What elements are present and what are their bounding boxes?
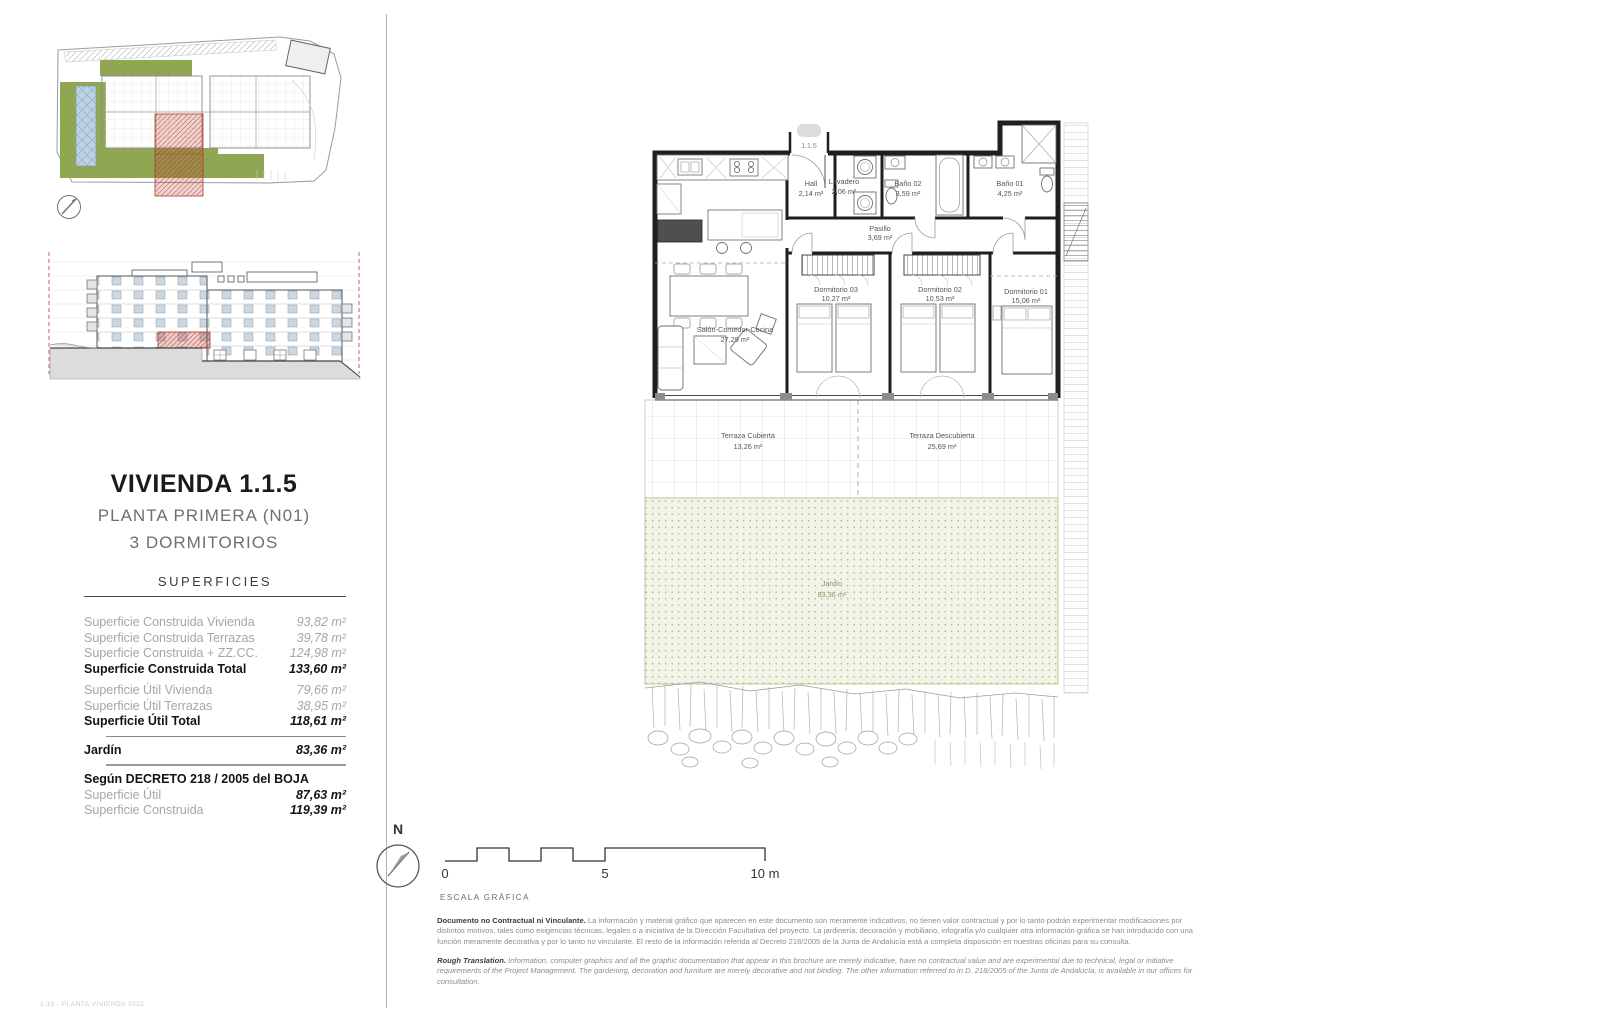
row-value: 79,66 m² (297, 683, 346, 699)
table-row: Superficie Construida Terrazas 39,78 m² (84, 631, 346, 647)
page-title: VIVIENDA 1.1.5 (38, 470, 370, 499)
media-cabinet (658, 220, 702, 242)
room-area-dormitorio02: 10,53 m² (926, 294, 955, 303)
table-row-garden: Jardín 83,36 m² (84, 743, 346, 759)
room-label-lavadero: Lavadero (829, 177, 859, 186)
table-row-total: Superficie Construida Total 133,60 m² (84, 662, 346, 678)
room-label-jardin: Jardín (822, 579, 842, 588)
stove-icon (730, 159, 758, 176)
elevation-drawing (42, 246, 367, 382)
row-label: Jardín (84, 743, 122, 759)
row-value: 93,82 m² (297, 615, 346, 631)
room-area-terraza-cubierta: 13,26 m² (734, 442, 763, 451)
room-label-terraza-descubierta: Terraza Descubierta (909, 431, 975, 440)
table-row: Superficie Construida Vivienda 93,82 m² (84, 615, 346, 631)
row-label: Superficie Útil Vivienda (84, 683, 212, 699)
terrace-area (645, 400, 1058, 498)
room-label-hall: Hall (805, 179, 818, 188)
row-value: 133,60 m² (289, 662, 346, 678)
table-row: Superficie Construida + ZZ.CC. 124,98 m² (84, 646, 346, 662)
row-label: Superficie Útil Terrazas (84, 699, 212, 715)
toilet-icon (1042, 176, 1053, 192)
room-label-dormitorio03: Dormitorio 03 (814, 285, 858, 294)
table-row: Superficie Construida 119,39 m² (84, 803, 346, 819)
surfaces-table-title: SUPERFICIES (84, 574, 346, 597)
disclaimer-en: Rough Translation. Information, computer… (437, 956, 1209, 987)
adjacent-strip-hatch (1064, 123, 1088, 693)
room-label-dormitorio02: Dormitorio 02 (918, 285, 962, 294)
row-label: Superficie Construida Total (84, 662, 246, 678)
row-value: 39,78 m² (297, 631, 346, 647)
sheet-code: 1.15 - PLANTA VIVIENDA 2022 (40, 1001, 144, 1008)
row-label: Superficie Construida Vivienda (84, 615, 255, 631)
washbasin-icon (891, 159, 899, 167)
table-row: Superficie Útil Terrazas 38,95 m² (84, 699, 346, 715)
scale-and-north: N 0 5 10 m ESCALA GRÁFICA (370, 818, 1230, 913)
dining-table (670, 264, 748, 328)
floor-plan-drawing: 1.1.5 (630, 108, 1230, 798)
row-label: Superficie Construida + ZZ.CC. (84, 646, 258, 662)
room-label-bano01: Baño 01 (996, 179, 1023, 188)
row-value: 38,95 m² (297, 699, 346, 715)
divider-line (106, 764, 346, 766)
subtitle-floor: PLANTA PRIMERA (N01) (38, 506, 370, 526)
table-section-header: Según DECRETO 218 / 2005 del BOJA (84, 772, 346, 788)
room-area-jardin: 83,36 m² (818, 590, 847, 599)
room-area-dormitorio01: 15,06 m² (1012, 296, 1041, 305)
disclaimer-en-lead: Rough Translation. (437, 956, 506, 965)
row-label: Superficie Construida (84, 803, 204, 819)
room-area-terraza-descubierta: 25,69 m² (928, 442, 957, 451)
disclaimer-es: Documento no Contractual ni Vinculante. … (437, 916, 1209, 947)
site-highlight-unit (155, 114, 203, 196)
scale-caption: ESCALA GRÁFICA (440, 893, 530, 902)
room-area-bano01: 4,25 m² (998, 189, 1023, 198)
north-arrow-icon (377, 845, 419, 887)
room-area-hall: 2,14 m² (799, 189, 824, 198)
divider-line (106, 736, 346, 737)
surfaces-table: SUPERFICIES Superficie Construida Vivien… (84, 574, 346, 819)
row-value: 119,39 m² (290, 803, 346, 819)
room-label-bano02: Baño 02 (894, 179, 921, 188)
section-label: Según DECRETO 218 / 2005 del BOJA (84, 772, 309, 788)
subtitle-bedrooms: 3 DORMITORIOS (38, 533, 370, 553)
row-label: Superficie Útil Total (84, 714, 200, 730)
unit-number-label: 1.1.5 (801, 143, 817, 150)
room-label-dormitorio01: Dormitorio 01 (1004, 287, 1048, 296)
site-pool (76, 86, 96, 166)
row-value: 124,98 m² (290, 646, 346, 662)
row-value: 87,63 m² (296, 788, 346, 804)
terrain-stones (648, 729, 917, 768)
disclaimer-block: Documento no Contractual ni Vinculante. … (437, 916, 1209, 987)
table-row: Superficie Útil Vivienda 79,66 m² (84, 683, 346, 699)
disclaimer-es-lead: Documento no Contractual ni Vinculante. (437, 916, 586, 925)
scale-tick-10: 10 m (751, 866, 780, 881)
elevation-highlight-unit (158, 332, 210, 348)
room-area-bano02: 3,59 m² (896, 189, 921, 198)
site-plan-drawing (42, 20, 372, 228)
garden-area (645, 498, 1058, 684)
room-label-salon: Salón-Comedor-Cocina (697, 325, 774, 334)
plan-sheet: VIVIENDA 1.1.5 PLANTA PRIMERA (N01) 3 DO… (0, 0, 1600, 1024)
site-north-arrow-icon (58, 196, 81, 219)
room-label-pasillo: Pasillo (869, 224, 891, 233)
terrain-hatch (645, 682, 1058, 769)
row-label: Superficie Construida Terrazas (84, 631, 255, 647)
north-label: N (393, 821, 403, 837)
room-area-pasillo: 3,69 m² (868, 233, 893, 242)
scale-tick-5: 5 (601, 866, 608, 881)
disclaimer-en-body: Information, computer graphics and all t… (437, 956, 1192, 986)
title-block: VIVIENDA 1.1.5 PLANTA PRIMERA (N01) 3 DO… (38, 470, 370, 553)
entry-landing: 1.1.5 (797, 124, 821, 150)
room-area-dormitorio03: 10,27 m² (822, 294, 851, 303)
row-label: Superficie Útil (84, 788, 161, 804)
row-value: 83,36 m² (296, 743, 346, 759)
scale-tick-0: 0 (441, 866, 448, 881)
room-area-lavadero: 2,06 m² (832, 187, 857, 196)
row-value: 118,61 m² (290, 714, 346, 730)
table-row: Superficie Útil 87,63 m² (84, 788, 346, 804)
graphic-scale-bar: 0 5 10 m ESCALA GRÁFICA (440, 848, 779, 902)
table-row-total: Superficie Útil Total 118,61 m² (84, 714, 346, 730)
bedroom1-bed (993, 306, 1052, 374)
room-area-salon: 27,29 m² (721, 335, 750, 344)
room-label-terraza-cubierta: Terraza Cubierta (721, 431, 776, 440)
